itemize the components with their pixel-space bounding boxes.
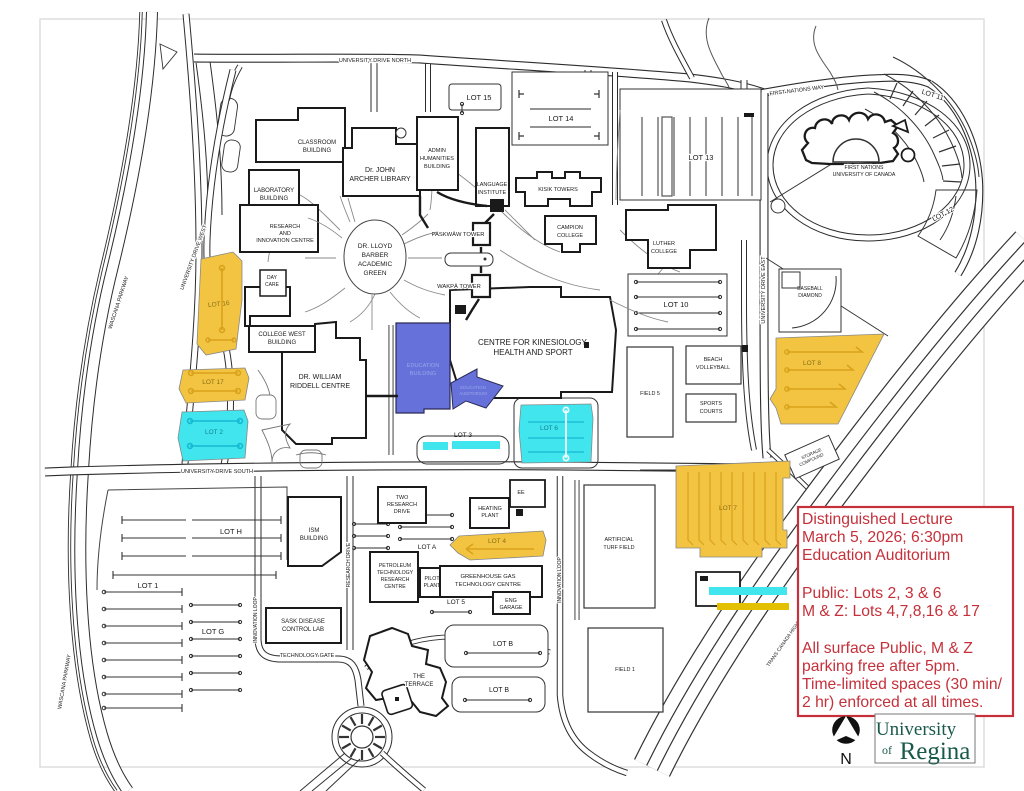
svg-text:LOT 14: LOT 14 xyxy=(549,114,574,123)
svg-text:ENG: ENG xyxy=(505,598,517,604)
svg-text:BUILDING: BUILDING xyxy=(260,196,289,202)
svg-text:LUTHER: LUTHER xyxy=(653,241,675,247)
svg-text:LOT 4: LOT 4 xyxy=(488,538,506,545)
svg-text:N: N xyxy=(840,751,852,768)
svg-text:TECHNOLOGY: TECHNOLOGY xyxy=(377,570,414,576)
svg-text:RESEARCH: RESEARCH xyxy=(387,502,417,508)
svg-text:KISIK TOWERS: KISIK TOWERS xyxy=(538,187,578,193)
svg-text:RESEARCH: RESEARCH xyxy=(270,224,301,230)
svg-text:THE: THE xyxy=(413,674,425,680)
svg-text:Distinguished Lecture: Distinguished Lecture xyxy=(802,511,953,528)
svg-text:SASK DISEASE: SASK DISEASE xyxy=(281,619,325,625)
svg-text:DAY: DAY xyxy=(267,275,278,281)
svg-text:AUDITORIUM: AUDITORIUM xyxy=(459,391,487,396)
svg-text:LOT 15: LOT 15 xyxy=(467,93,492,102)
svg-text:TECHNOLOGY CENTRE: TECHNOLOGY CENTRE xyxy=(455,582,521,588)
svg-text:EDUCATION: EDUCATION xyxy=(460,385,486,390)
svg-text:M & Z: Lots 4,7,8,16 & 17: M & Z: Lots 4,7,8,16 & 17 xyxy=(802,603,980,620)
svg-text:LOT 6: LOT 6 xyxy=(540,425,558,432)
svg-text:TWO: TWO xyxy=(396,495,409,501)
svg-text:PLANT: PLANT xyxy=(424,583,442,589)
svg-text:LOT B: LOT B xyxy=(493,641,513,648)
svg-text:DR. WILLIAM: DR. WILLIAM xyxy=(299,374,342,381)
svg-text:FIRST NATIONS: FIRST NATIONS xyxy=(844,165,884,171)
svg-text:FIELD 1: FIELD 1 xyxy=(615,667,635,673)
svg-text:Education Auditorium: Education Auditorium xyxy=(802,547,950,564)
svg-text:LOT G: LOT G xyxy=(202,627,225,636)
svg-text:INNOVATION LOOP: INNOVATION LOOP xyxy=(253,597,259,643)
svg-text:Public: Lots 2, 3 & 6: Public: Lots 2, 3 & 6 xyxy=(802,585,942,602)
svg-text:SPORTS: SPORTS xyxy=(700,401,722,407)
svg-text:CONTROL LAB: CONTROL LAB xyxy=(282,627,324,633)
svg-text:2 hr) enforced at all times.: 2 hr) enforced at all times. xyxy=(802,694,983,711)
svg-text:UNIVERSITY DRIVE NORTH: UNIVERSITY DRIVE NORTH xyxy=(339,58,411,64)
svg-text:FIELD 5: FIELD 5 xyxy=(640,391,660,397)
svg-text:CAMPION: CAMPION xyxy=(557,225,583,231)
svg-text:March 5, 2026; 6:30pm: March 5, 2026; 6:30pm xyxy=(802,529,963,546)
svg-text:LOT 1: LOT 1 xyxy=(138,581,159,590)
svg-text:LABORATORY: LABORATORY xyxy=(254,188,294,194)
svg-text:HEATING: HEATING xyxy=(478,506,502,512)
svg-text:BUILDING: BUILDING xyxy=(424,164,450,170)
svg-text:CENTRE FOR KINESIOLOGY,: CENTRE FOR KINESIOLOGY, xyxy=(478,338,588,347)
svg-text:LOT 2: LOT 2 xyxy=(205,429,223,436)
svg-text:COLLEGE WEST: COLLEGE WEST xyxy=(258,332,306,338)
svg-text:ACADEMIC: ACADEMIC xyxy=(358,261,393,268)
svg-text:LOT 5: LOT 5 xyxy=(447,599,465,606)
svg-text:COLLEGE: COLLEGE xyxy=(651,249,677,255)
svg-text:RESEARCH DRIVE: RESEARCH DRIVE xyxy=(346,542,352,587)
svg-text:LOT 17: LOT 17 xyxy=(202,379,224,386)
svg-text:RESEARCH: RESEARCH xyxy=(381,577,410,583)
svg-text:All surface Public, M & Z: All surface Public, M & Z xyxy=(802,640,973,657)
svg-text:LOT 8: LOT 8 xyxy=(803,360,821,367)
svg-text:UNIVERSITY OF CANADA: UNIVERSITY OF CANADA xyxy=(833,172,896,178)
svg-text:WAKPĀ TOWER: WAKPĀ TOWER xyxy=(437,283,481,290)
svg-text:CENTRE: CENTRE xyxy=(384,584,406,590)
svg-text:EE: EE xyxy=(517,490,525,496)
svg-text:Regina: Regina xyxy=(900,738,971,765)
svg-text:COLLEGE: COLLEGE xyxy=(557,233,583,239)
svg-text:DR. LLOYD: DR. LLOYD xyxy=(358,243,393,250)
svg-text:EDUCATION: EDUCATION xyxy=(407,363,440,369)
svg-text:BUILDING: BUILDING xyxy=(300,536,329,542)
svg-text:BUILDING: BUILDING xyxy=(303,148,332,154)
svg-text:LOT 3: LOT 3 xyxy=(454,432,472,439)
svg-text:AND: AND xyxy=(279,231,291,237)
svg-text:LOT 13: LOT 13 xyxy=(689,153,714,162)
svg-text:BUILDING: BUILDING xyxy=(268,340,297,346)
svg-text:of: of xyxy=(882,743,892,757)
svg-text:LOT 7: LOT 7 xyxy=(719,505,737,512)
svg-text:University: University xyxy=(876,719,957,740)
svg-text:ARTIFICIAL: ARTIFICIAL xyxy=(605,537,634,543)
svg-text:LOT B: LOT B xyxy=(489,687,509,694)
svg-text:ISM: ISM xyxy=(309,528,320,534)
svg-text:BUILDING: BUILDING xyxy=(410,371,436,377)
svg-text:UNIVERSITY DRIVE SOUTH: UNIVERSITY DRIVE SOUTH xyxy=(181,469,253,475)
svg-text:GREENHOUSE GAS: GREENHOUSE GAS xyxy=(460,574,515,580)
svg-text:HUMANITIES: HUMANITIES xyxy=(420,156,454,162)
svg-text:PETROLEUM: PETROLEUM xyxy=(379,563,411,569)
svg-text:INNOVATION CENTRE: INNOVATION CENTRE xyxy=(256,238,314,244)
svg-text:LOT H: LOT H xyxy=(220,527,242,536)
svg-text:PILOT: PILOT xyxy=(425,576,441,582)
svg-text:BARBER: BARBER xyxy=(362,252,389,259)
svg-text:LANGUAGE: LANGUAGE xyxy=(477,182,508,188)
svg-text:Time-limited spaces (30 min/: Time-limited spaces (30 min/ xyxy=(802,676,1003,693)
svg-text:INNOVATION LOOP: INNOVATION LOOP xyxy=(557,557,563,603)
svg-text:ARCHER LIBRARY: ARCHER LIBRARY xyxy=(349,176,411,183)
svg-text:PLANT: PLANT xyxy=(481,513,499,519)
svg-text:CLASSROOM: CLASSROOM xyxy=(298,140,336,146)
svg-text:INSTITUTE: INSTITUTE xyxy=(478,190,507,196)
svg-text:parking free after 5pm.: parking free after 5pm. xyxy=(802,658,960,675)
svg-text:TURF FIELD: TURF FIELD xyxy=(603,545,634,551)
svg-text:ADMIN: ADMIN xyxy=(428,148,446,154)
svg-text:Dr. JOHN: Dr. JOHN xyxy=(365,167,395,174)
svg-text:BASEBALL: BASEBALL xyxy=(797,286,823,292)
svg-text:GARAGE: GARAGE xyxy=(499,605,522,611)
svg-text:DRIVE: DRIVE xyxy=(394,509,411,515)
svg-text:LOT 10: LOT 10 xyxy=(664,300,689,309)
svg-text:TECHNOLOGY GATE: TECHNOLOGY GATE xyxy=(280,653,335,659)
svg-text:PASKWĀW TOWER: PASKWĀW TOWER xyxy=(432,231,485,238)
svg-text:LOT A: LOT A xyxy=(418,544,437,551)
svg-text:RIDDELL CENTRE: RIDDELL CENTRE xyxy=(290,383,350,390)
svg-text:GREEN: GREEN xyxy=(363,270,386,277)
svg-text:CARE: CARE xyxy=(265,282,280,288)
svg-text:UNIVERSITY DRIVE EAST: UNIVERSITY DRIVE EAST xyxy=(761,256,767,324)
svg-text:COURTS: COURTS xyxy=(700,409,723,415)
svg-text:VOLLEYBALL: VOLLEYBALL xyxy=(696,365,730,371)
svg-text:TERRACE: TERRACE xyxy=(405,682,434,688)
svg-text:BEACH: BEACH xyxy=(704,357,723,363)
svg-text:DIAMOND: DIAMOND xyxy=(798,293,822,299)
svg-text:HEALTH AND SPORT: HEALTH AND SPORT xyxy=(493,348,572,357)
